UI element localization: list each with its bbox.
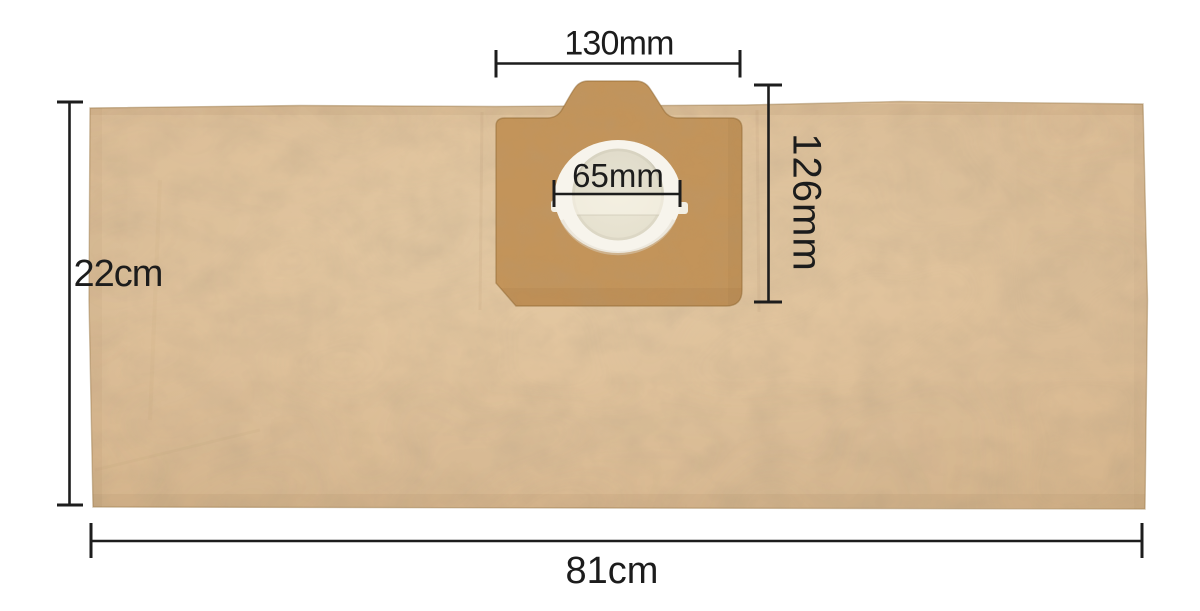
svg-text:22cm: 22cm — [74, 253, 163, 295]
svg-text:130mm: 130mm — [564, 25, 673, 63]
svg-text:126mm: 126mm — [785, 133, 829, 271]
svg-text:65mm: 65mm — [572, 157, 664, 194]
svg-text:81cm: 81cm — [566, 550, 659, 592]
